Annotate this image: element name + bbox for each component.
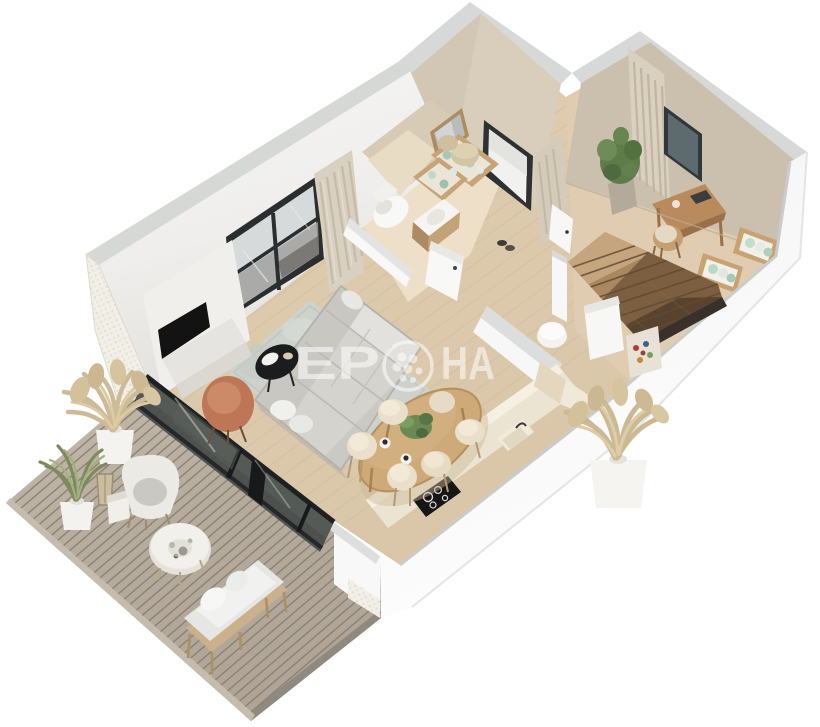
svg-text:ЕР: ЕР [294, 337, 380, 389]
svg-text:НА: НА [441, 337, 495, 389]
